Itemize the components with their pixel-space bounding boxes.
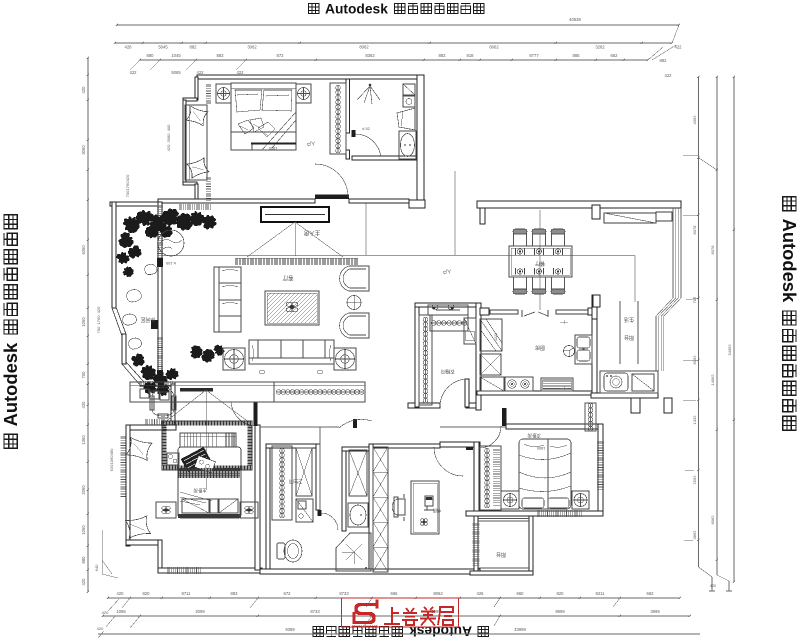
svg-text:883: 883	[217, 53, 225, 58]
svg-text:8078: 8078	[710, 245, 715, 255]
svg-text:餐厅: 餐厅	[535, 260, 545, 267]
svg-text:1060: 1060	[109, 455, 114, 465]
svg-text:3060: 3060	[166, 133, 171, 143]
svg-text:阳台: 阳台	[624, 334, 634, 341]
svg-text:883: 883	[231, 591, 239, 596]
svg-text:640: 640	[94, 564, 99, 571]
svg-text:420: 420	[97, 626, 104, 631]
svg-text:380: 380	[109, 448, 114, 455]
svg-text:660: 660	[517, 591, 525, 596]
svg-text:休闲区: 休闲区	[140, 316, 155, 323]
svg-text:8078: 8078	[692, 225, 697, 235]
svg-text:2562: 2562	[692, 475, 697, 485]
svg-text:782: 782	[692, 296, 697, 303]
svg-text:40638: 40638	[569, 17, 581, 22]
svg-text:820: 820	[143, 591, 151, 596]
svg-text:882: 882	[190, 45, 198, 50]
svg-text:3060: 3060	[81, 145, 86, 155]
svg-text:818: 818	[467, 53, 475, 58]
svg-text:882: 882	[660, 58, 668, 63]
svg-text:1223: 1223	[494, 333, 498, 341]
svg-text:700: 700	[81, 371, 86, 379]
svg-text:422: 422	[130, 70, 138, 75]
svg-text:次卧房: 次卧房	[527, 432, 541, 439]
svg-text:14062: 14062	[710, 374, 715, 386]
svg-text:420: 420	[96, 306, 101, 313]
svg-text:33999: 33999	[514, 627, 526, 632]
svg-text:3282: 3282	[595, 45, 605, 50]
svg-text:422: 422	[237, 70, 245, 75]
svg-text:1800: 1800	[269, 146, 277, 150]
svg-text:主卧房: 主卧房	[193, 487, 207, 494]
svg-text:8733: 8733	[310, 609, 320, 614]
svg-text:h-155: h-155	[166, 261, 176, 265]
svg-text:420: 420	[81, 401, 86, 409]
svg-text:厨房: 厨房	[535, 344, 545, 351]
svg-text:1360: 1360	[81, 435, 86, 445]
svg-text:书房: 书房	[432, 507, 441, 514]
svg-text:阳台: 阳台	[496, 551, 506, 558]
svg-text:880: 880	[147, 53, 155, 58]
svg-text:420: 420	[81, 578, 86, 586]
svg-text:衣帽间: 衣帽间	[441, 368, 455, 375]
svg-text:700: 700	[125, 190, 130, 197]
svg-text:420: 420	[166, 144, 171, 151]
svg-text:主人房: 主人房	[303, 229, 320, 237]
svg-text:700: 700	[96, 326, 101, 333]
svg-text:入户: 入户	[307, 140, 316, 147]
svg-text:1095: 1095	[116, 609, 126, 614]
svg-text:1800: 1800	[537, 446, 545, 450]
svg-text:8362: 8362	[365, 53, 375, 58]
svg-text:8062: 8062	[692, 355, 697, 365]
svg-text:客厅: 客厅	[282, 274, 294, 282]
svg-text:1060: 1060	[81, 317, 86, 327]
svg-text:8777: 8777	[529, 53, 539, 58]
svg-text:422: 422	[197, 70, 205, 75]
svg-text:5065: 5065	[171, 70, 181, 75]
svg-text:8211: 8211	[595, 591, 605, 596]
svg-text:1760: 1760	[125, 181, 130, 191]
svg-text:665: 665	[391, 591, 399, 596]
svg-text:8062: 8062	[489, 45, 499, 50]
svg-text:400: 400	[166, 124, 171, 131]
svg-text:1760: 1760	[96, 315, 101, 325]
svg-text:3999: 3999	[650, 609, 660, 614]
svg-text:9999: 9999	[555, 609, 565, 614]
svg-text:8733: 8733	[339, 591, 349, 596]
svg-text:入户: 入户	[443, 268, 452, 275]
svg-text:2099: 2099	[195, 609, 205, 614]
svg-text:1060: 1060	[81, 525, 86, 535]
svg-text:8711: 8711	[181, 591, 191, 596]
svg-text:8062: 8062	[433, 591, 443, 596]
svg-text:885: 885	[573, 53, 581, 58]
svg-text:1432: 1432	[692, 415, 697, 425]
svg-text:420: 420	[102, 610, 109, 615]
svg-text:1045: 1045	[171, 53, 181, 58]
svg-text:3862: 3862	[692, 530, 697, 540]
svg-text:662: 662	[647, 591, 655, 596]
svg-text:2060: 2060	[81, 485, 86, 495]
svg-text:872: 872	[277, 53, 285, 58]
svg-text:422: 422	[665, 73, 673, 78]
svg-text:8062: 8062	[710, 515, 715, 525]
svg-text:420: 420	[117, 591, 125, 596]
svg-text:420: 420	[125, 174, 130, 181]
svg-text:426: 426	[477, 591, 485, 596]
svg-text:4362: 4362	[692, 115, 697, 125]
svg-text:d 52: d 52	[362, 127, 369, 131]
svg-text:4060: 4060	[81, 245, 86, 255]
svg-text:883: 883	[439, 53, 447, 58]
svg-text:620: 620	[109, 464, 114, 471]
svg-text:8062: 8062	[359, 45, 369, 50]
svg-text:428: 428	[125, 45, 133, 50]
svg-text:880: 880	[81, 556, 86, 564]
svg-text:9399: 9399	[285, 627, 295, 632]
svg-text:820: 820	[557, 591, 565, 596]
svg-text:662: 662	[611, 53, 619, 58]
svg-text:卫生间: 卫生间	[289, 478, 303, 485]
svg-text:3062: 3062	[247, 45, 257, 50]
svg-text:420: 420	[81, 86, 86, 94]
svg-text:34362: 34362	[727, 344, 732, 356]
svg-text:5045: 5045	[158, 45, 168, 50]
svg-text:生活: 生活	[624, 316, 634, 323]
svg-text:420: 420	[710, 584, 716, 588]
svg-text:672: 672	[284, 591, 292, 596]
